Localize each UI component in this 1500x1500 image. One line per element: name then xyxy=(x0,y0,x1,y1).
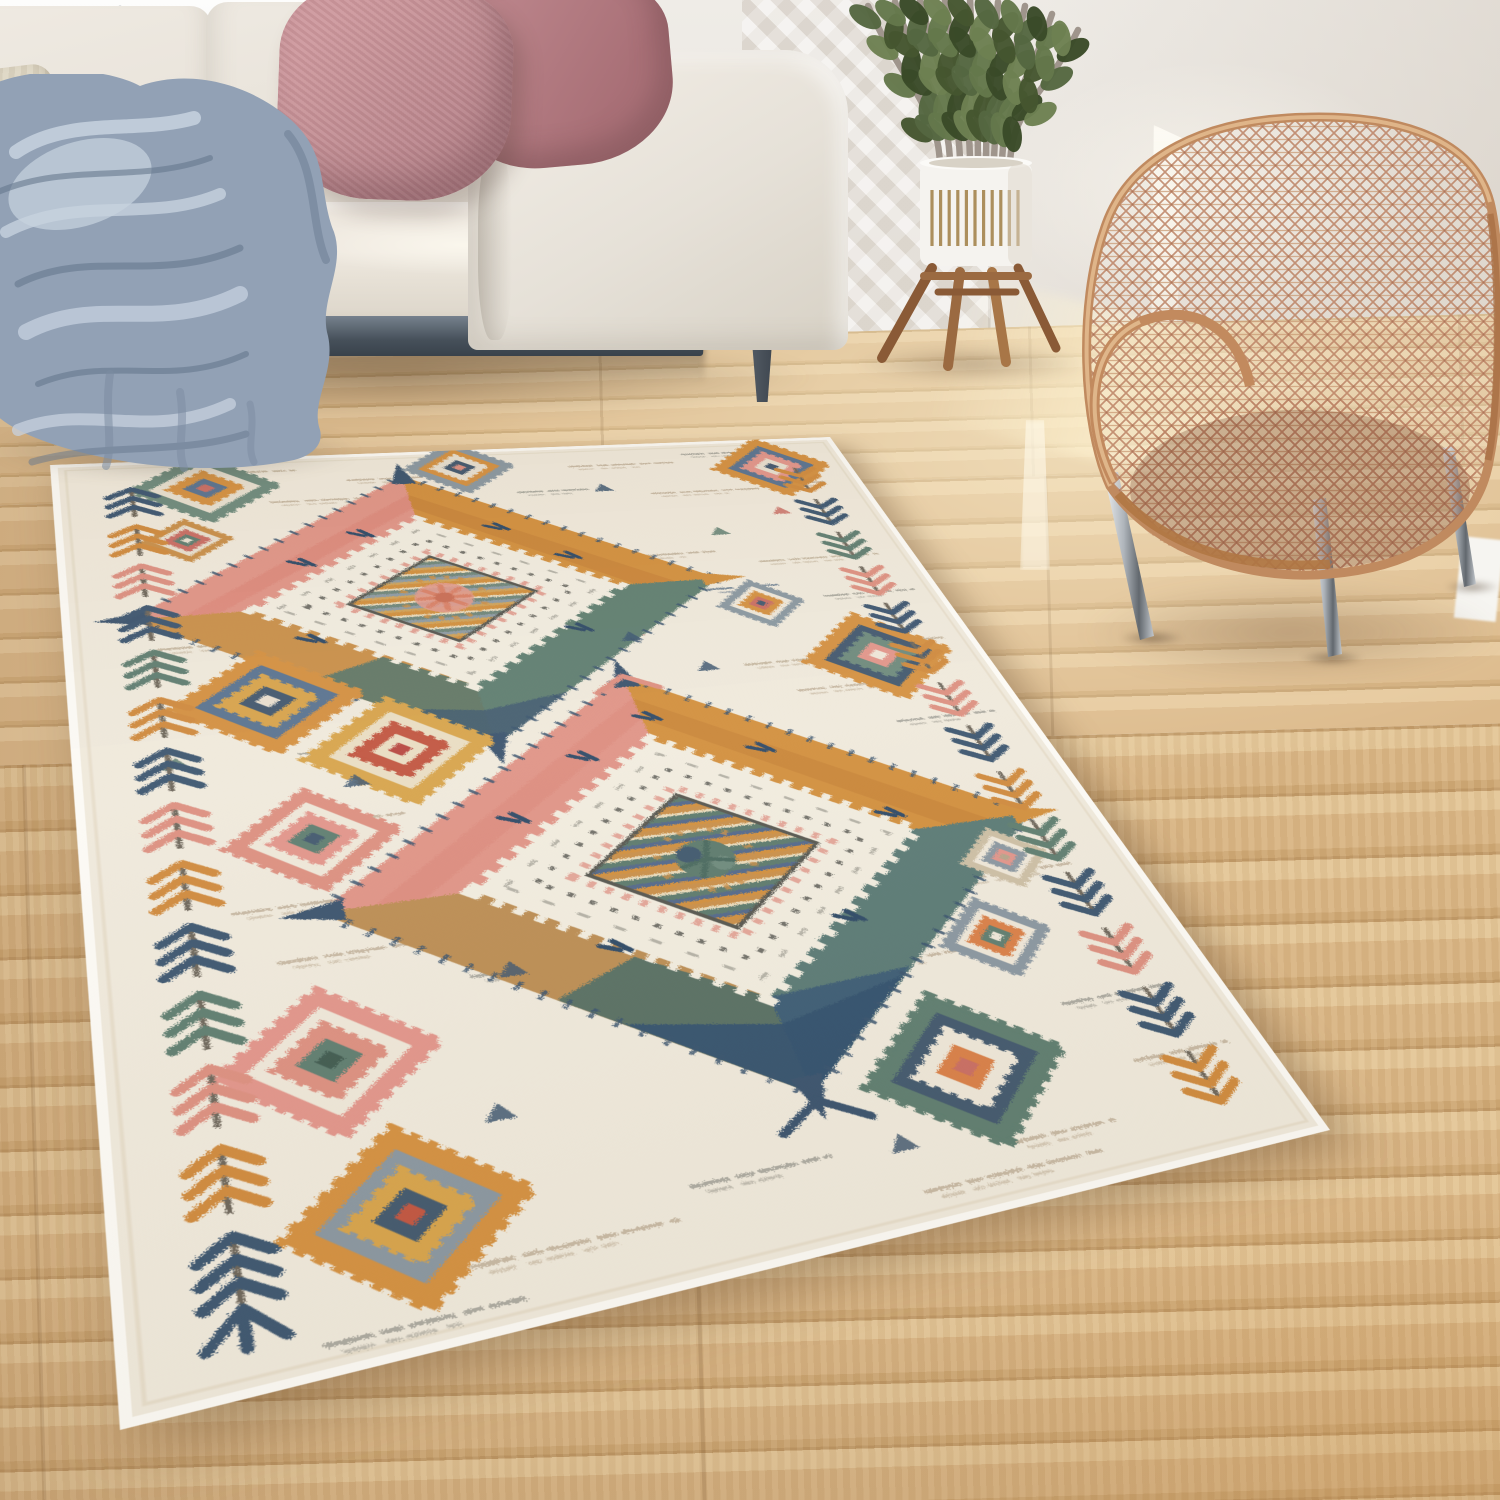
living-room-scene xyxy=(0,0,1500,1500)
rattan-chair xyxy=(1048,94,1500,674)
sofa-armrest-shadow xyxy=(478,150,512,340)
plant-stand xyxy=(882,268,1056,366)
throw-blanket xyxy=(0,74,360,474)
chair-shell xyxy=(1087,117,1500,575)
plant-pot xyxy=(920,156,1032,266)
